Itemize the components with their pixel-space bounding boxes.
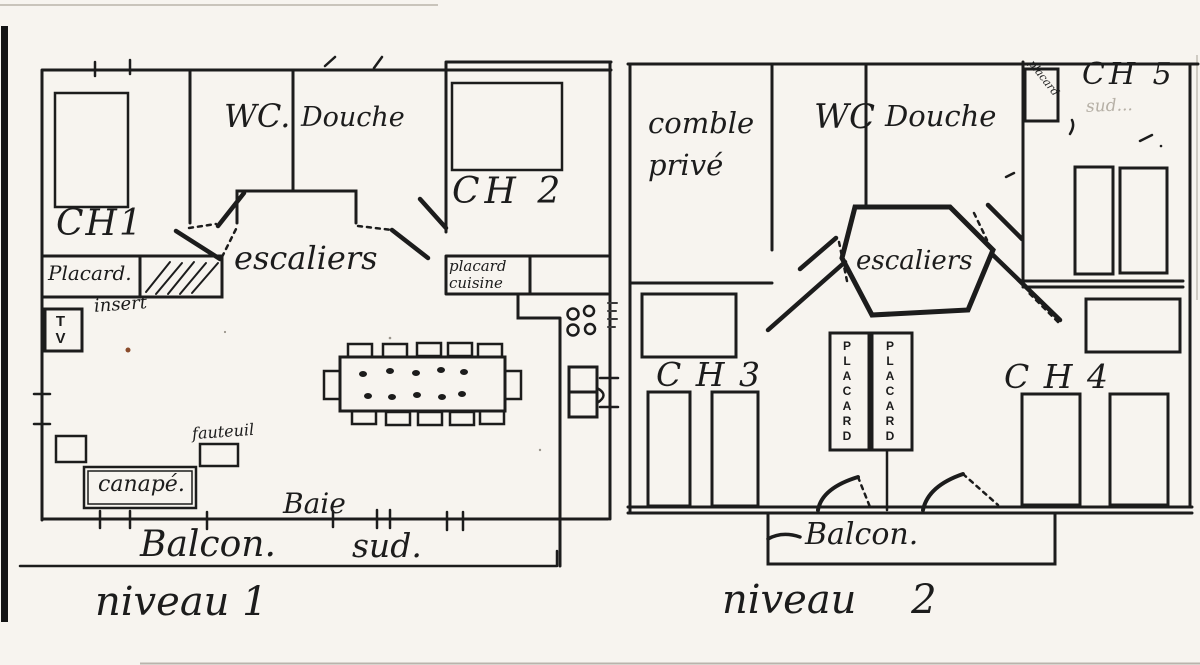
balcon-label-1: Balcon. <box>140 527 276 563</box>
ch1-bed <box>55 93 128 207</box>
room-label-comble-prive: comble privé <box>648 102 754 186</box>
ch4-furniture <box>1022 299 1180 505</box>
floorplan-drawing <box>0 0 1200 665</box>
placard-label: Placard. <box>48 263 132 283</box>
placard-vertical-left-label: PLACARD <box>841 339 853 447</box>
baie-label: Baie <box>283 490 346 518</box>
room-label-escaliers-2: escaliers <box>856 248 973 274</box>
ink-speck <box>126 348 131 353</box>
room-label-douche-2: Douche <box>885 102 996 131</box>
bedroom-doors <box>818 474 998 510</box>
level2-caption: niveau 2 <box>722 580 937 620</box>
side-table-box <box>56 436 86 462</box>
room-label-ch5: CH 5 <box>1082 60 1176 90</box>
placard-cuisine-line1: placard <box>449 258 506 275</box>
placard-cuisine-line2: cuisine <box>449 275 506 292</box>
ch2-bed <box>452 83 562 170</box>
fauteuil-box <box>200 444 238 466</box>
balcon-scribble <box>768 534 800 539</box>
room-label-wc-1: WC. <box>224 100 290 132</box>
room-label-ch3: C H 3 <box>656 358 762 391</box>
room-label-ch4: C H 4 <box>1004 360 1110 393</box>
kitchen-sink <box>569 367 604 417</box>
level1-balcony-line <box>20 551 557 566</box>
canape-label: canapé. <box>98 474 185 496</box>
comble-line2: privé <box>648 144 754 186</box>
ch5-faint-sud-label: sud... <box>1086 97 1133 116</box>
placard-vertical-right-label: PLACARD <box>884 339 896 447</box>
placard-cuisine-label: placard cuisine <box>449 258 506 293</box>
sud-label-1: sud. <box>352 529 422 562</box>
balcon-label-2: Balcon. <box>805 520 918 550</box>
level1-caption: niveau 1 <box>95 582 268 622</box>
fauteuil-label: fauteuil <box>192 422 255 442</box>
tv-label: TV <box>53 313 68 347</box>
room-label-ch1: CH1 <box>56 206 144 242</box>
room-label-ch2: CH 2 <box>452 174 565 210</box>
table-plates <box>359 367 468 400</box>
insert-label: insert <box>93 294 147 316</box>
comble-line1: comble <box>648 102 754 144</box>
scanned-floorplan-page: CH1 WC. Douche CH 2 escaliers Placard. i… <box>0 0 1200 665</box>
room-label-douche-1: Douche <box>301 104 405 131</box>
room-label-escaliers-1: escaliers <box>234 242 377 274</box>
ch5-beds <box>1075 167 1167 274</box>
room-label-wc-2: WC <box>814 100 875 134</box>
dining-table <box>324 343 521 425</box>
stove-burners <box>568 306 596 336</box>
ch3-furniture <box>642 294 758 506</box>
